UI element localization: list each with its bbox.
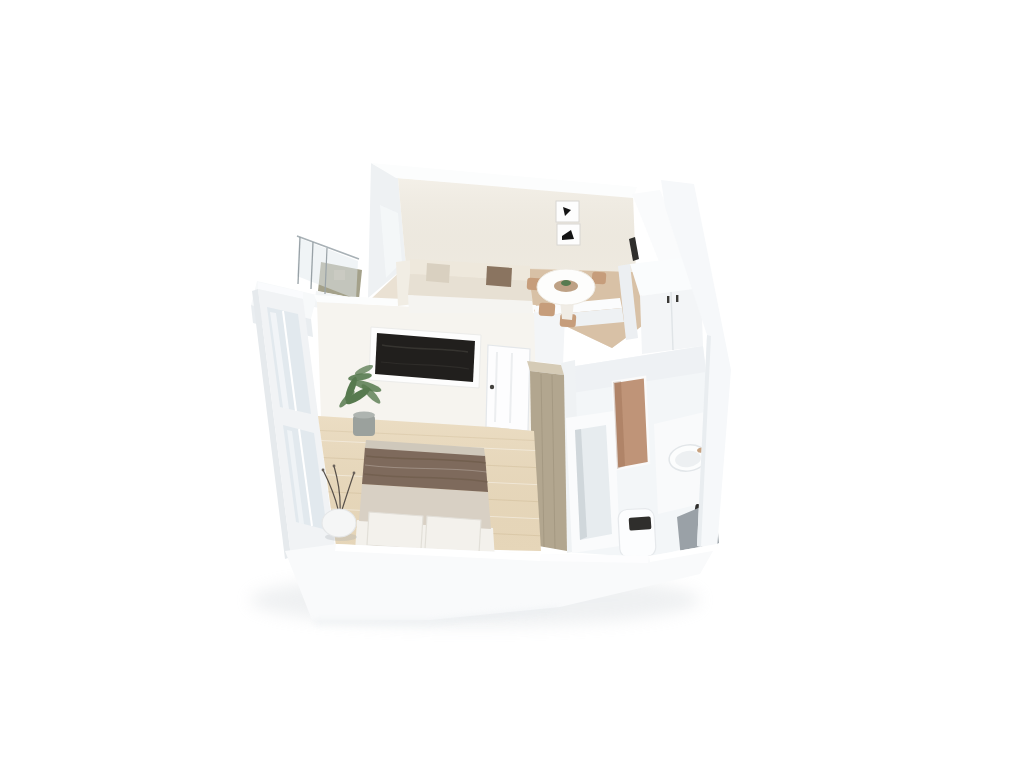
apartment-3d-render (0, 0, 1024, 768)
closet-handle (667, 296, 669, 303)
table-plant (561, 280, 571, 286)
toilet (618, 508, 656, 558)
closet-handle (676, 295, 678, 302)
interior-door (486, 345, 530, 431)
branch-bud (353, 472, 356, 475)
door-handle (490, 385, 494, 389)
branch-bud (322, 469, 325, 472)
double-bed (355, 440, 495, 560)
vase-body (322, 509, 356, 537)
bed-pillow-right (425, 516, 481, 553)
toilet-lid-detail (629, 516, 652, 531)
sofa (396, 259, 533, 313)
branch-bud (333, 465, 336, 468)
bathroom (561, 346, 719, 559)
wall-tv (375, 333, 475, 382)
floorplan-render-canvas (0, 0, 1024, 768)
cushion-beige (426, 263, 450, 283)
pot-rim (353, 412, 375, 419)
dining-chair (539, 302, 556, 316)
cushion-brown (486, 266, 512, 287)
bed-pillow-left (367, 512, 423, 549)
